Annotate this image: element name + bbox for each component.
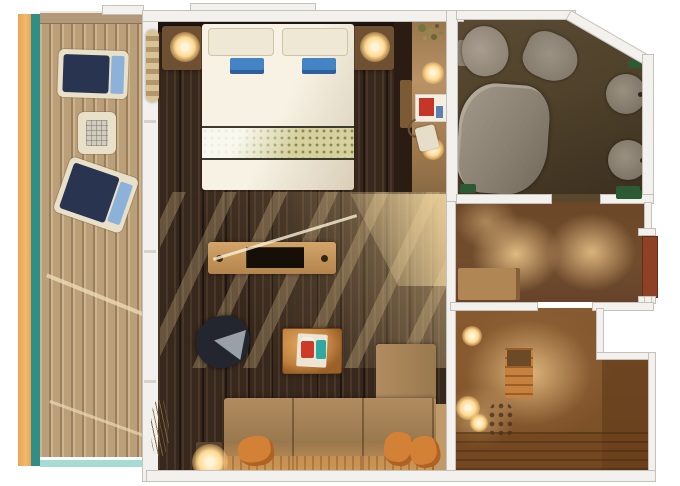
pillow	[282, 28, 348, 56]
red-tray-item	[301, 337, 314, 358]
picture-blue-motif	[436, 106, 443, 118]
decor-swirl	[488, 402, 514, 438]
wall	[102, 5, 144, 15]
hall-cabinet-top	[507, 350, 531, 366]
wall	[446, 192, 456, 482]
cabin-entry-door	[642, 236, 658, 298]
potted-plant-icon	[418, 24, 426, 32]
wall	[450, 302, 538, 311]
coffee-table	[282, 328, 342, 374]
balcony-bottom-divider	[40, 457, 142, 467]
wall	[642, 54, 654, 202]
balcony-awning-strip	[18, 14, 31, 466]
lounge-footrest	[110, 56, 124, 94]
entrance-hall-floor	[456, 308, 648, 470]
window-mullion	[144, 250, 156, 253]
curtain	[146, 30, 159, 102]
wall	[648, 352, 656, 480]
hall-lamp-icon	[470, 414, 488, 432]
lounge-cushion	[62, 54, 109, 94]
hall-wood-band	[456, 432, 648, 470]
green-towel	[616, 190, 642, 199]
double-bed	[202, 24, 354, 190]
folded-blue-towel	[230, 58, 264, 74]
teal-tray-item	[316, 340, 326, 359]
bedside-lamp-icon	[360, 32, 390, 62]
folded-blue-towel	[302, 58, 336, 74]
wall	[446, 10, 458, 202]
tv-screen	[246, 247, 304, 268]
green-towel	[460, 184, 476, 193]
corridor-bench	[458, 268, 520, 300]
wall	[456, 10, 576, 20]
wall	[456, 194, 552, 204]
bedside-lamp-icon	[170, 32, 200, 62]
lounge-chair	[57, 49, 129, 99]
bed-runner	[202, 126, 354, 160]
window-mullion	[144, 380, 156, 383]
wall	[596, 352, 652, 360]
hall-lamp-icon	[462, 326, 482, 346]
door-frame	[638, 228, 656, 236]
pillow	[208, 28, 274, 56]
dried-plant	[151, 400, 169, 456]
runner-highlight	[202, 128, 354, 158]
console-knob	[321, 255, 328, 262]
wall	[142, 10, 464, 22]
balcony-rail-strip	[31, 14, 40, 466]
tv-console	[208, 242, 336, 274]
balcony-side-table	[78, 112, 116, 154]
wall	[596, 308, 604, 358]
table-top	[86, 120, 108, 146]
vanity-lamp-icon	[422, 62, 444, 84]
desk-chair	[196, 314, 254, 374]
picture-red-motif	[419, 98, 434, 116]
floorplan-canvas	[0, 0, 680, 486]
wall	[146, 470, 656, 482]
window-mullion	[144, 120, 156, 123]
